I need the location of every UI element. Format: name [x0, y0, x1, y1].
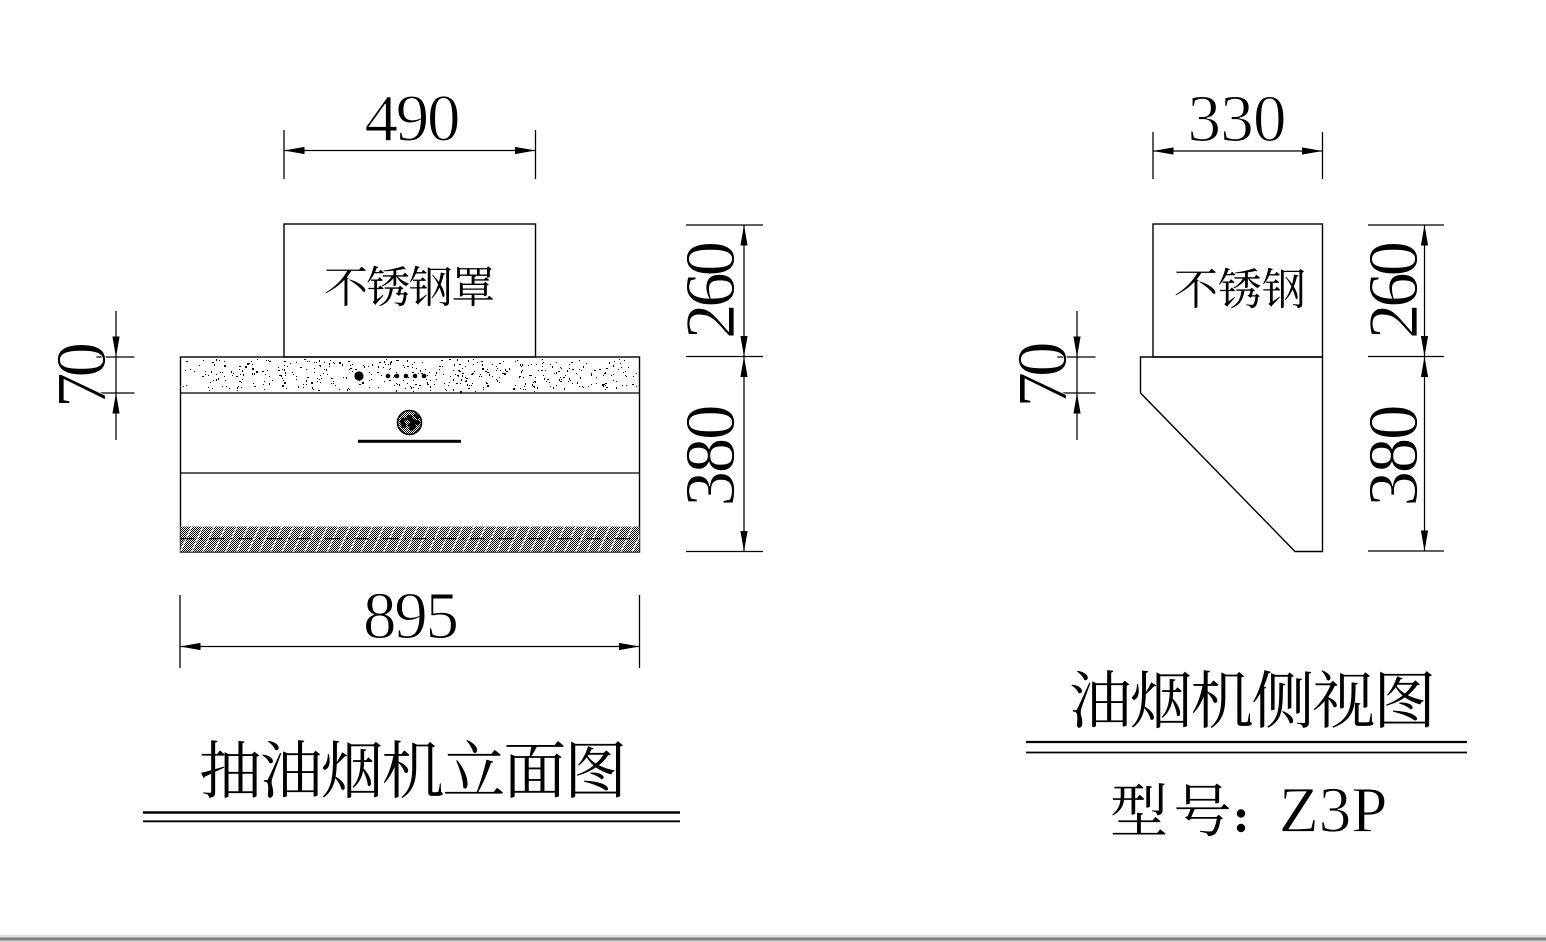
svg-text:70: 70	[43, 342, 121, 408]
svg-text:70: 70	[1004, 342, 1082, 408]
svg-text:260: 260	[672, 241, 750, 339]
svg-text:380: 380	[1355, 405, 1433, 507]
svg-text:490: 490	[365, 82, 461, 156]
svg-text:Z3P: Z3P	[1279, 775, 1387, 847]
svg-text:895: 895	[363, 579, 459, 653]
svg-text:260: 260	[1355, 241, 1433, 339]
svg-text:330: 330	[1188, 82, 1287, 156]
svg-text:380: 380	[672, 405, 750, 507]
